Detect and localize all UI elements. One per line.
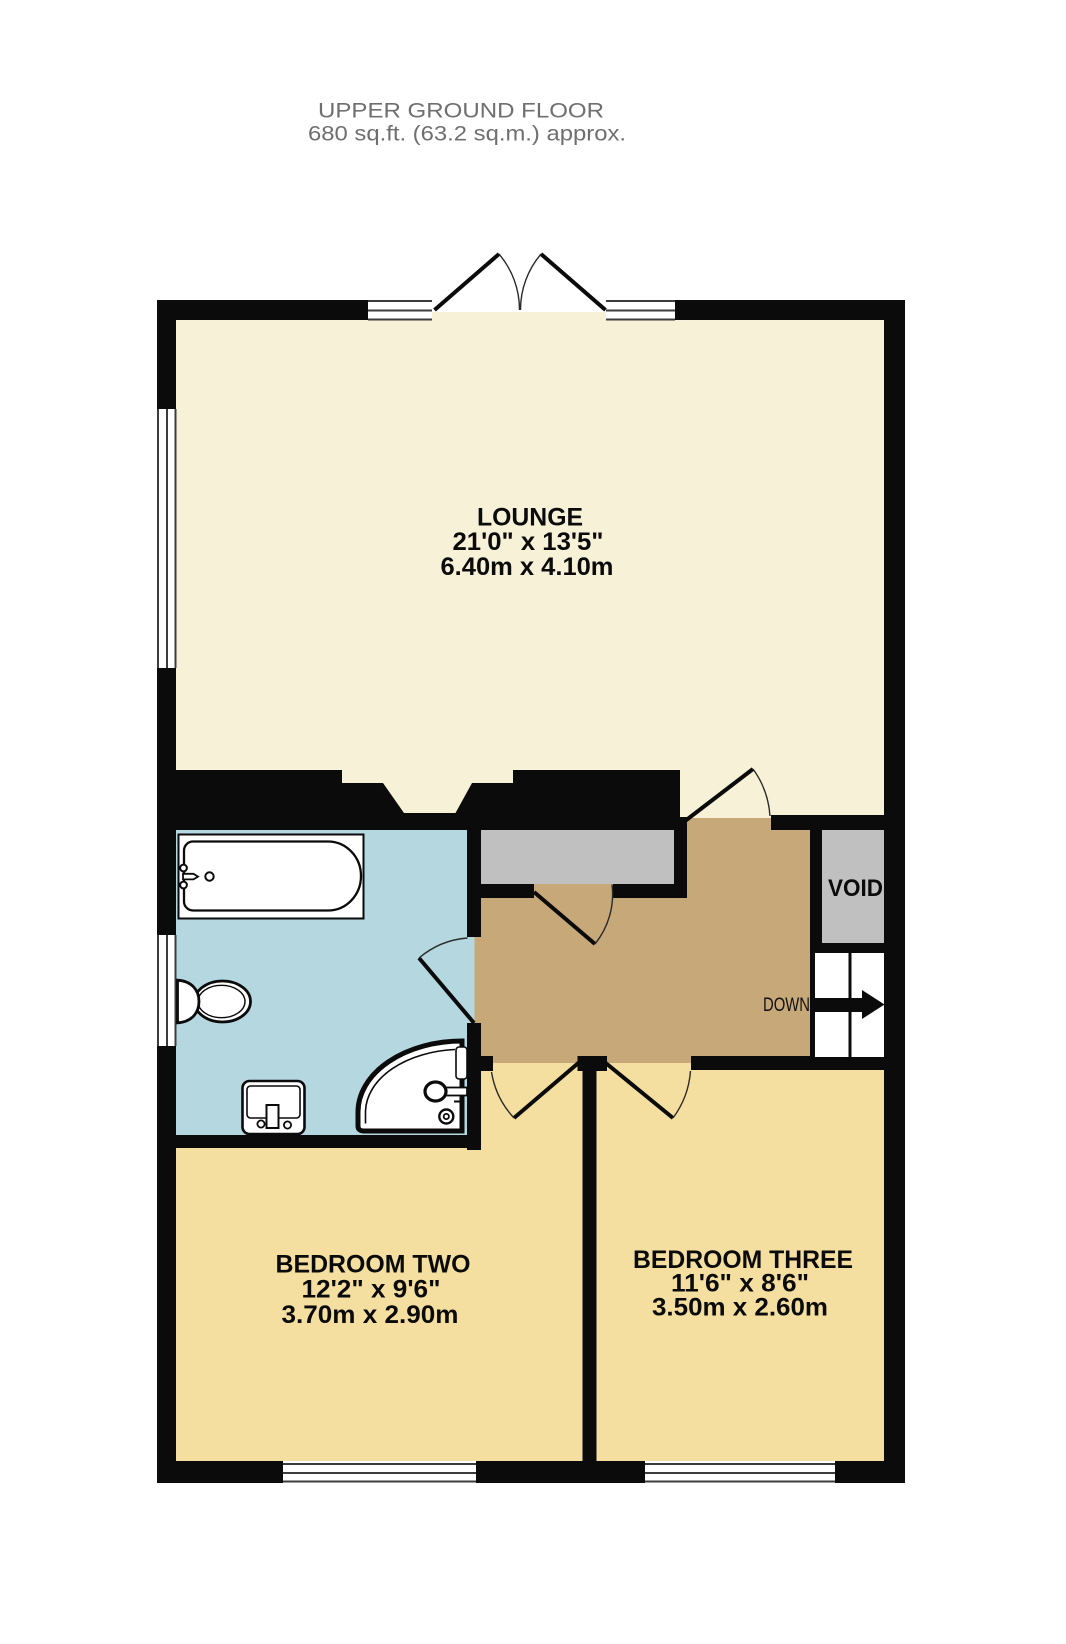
svg-text:VOID: VOID bbox=[828, 875, 883, 902]
svg-text:DOWN: DOWN bbox=[763, 995, 810, 1016]
svg-text:12'2" x 9'6": 12'2" x 9'6" bbox=[302, 1276, 441, 1304]
svg-text:3.70m x 2.90m: 3.70m x 2.90m bbox=[282, 1301, 459, 1329]
svg-text:UPPER GROUND FLOOR: UPPER GROUND FLOOR bbox=[318, 100, 604, 123]
svg-text:BEDROOM TWO: BEDROOM TWO bbox=[276, 1251, 471, 1279]
svg-text:21'0" x 13'5": 21'0" x 13'5" bbox=[453, 528, 604, 556]
svg-text:6.40m x 4.10m: 6.40m x 4.10m bbox=[441, 553, 614, 581]
svg-text:3.50m x 2.60m: 3.50m x 2.60m bbox=[652, 1294, 828, 1322]
svg-text:680 sq.ft. (63.2 sq.m.) approx: 680 sq.ft. (63.2 sq.m.) approx. bbox=[308, 123, 626, 146]
